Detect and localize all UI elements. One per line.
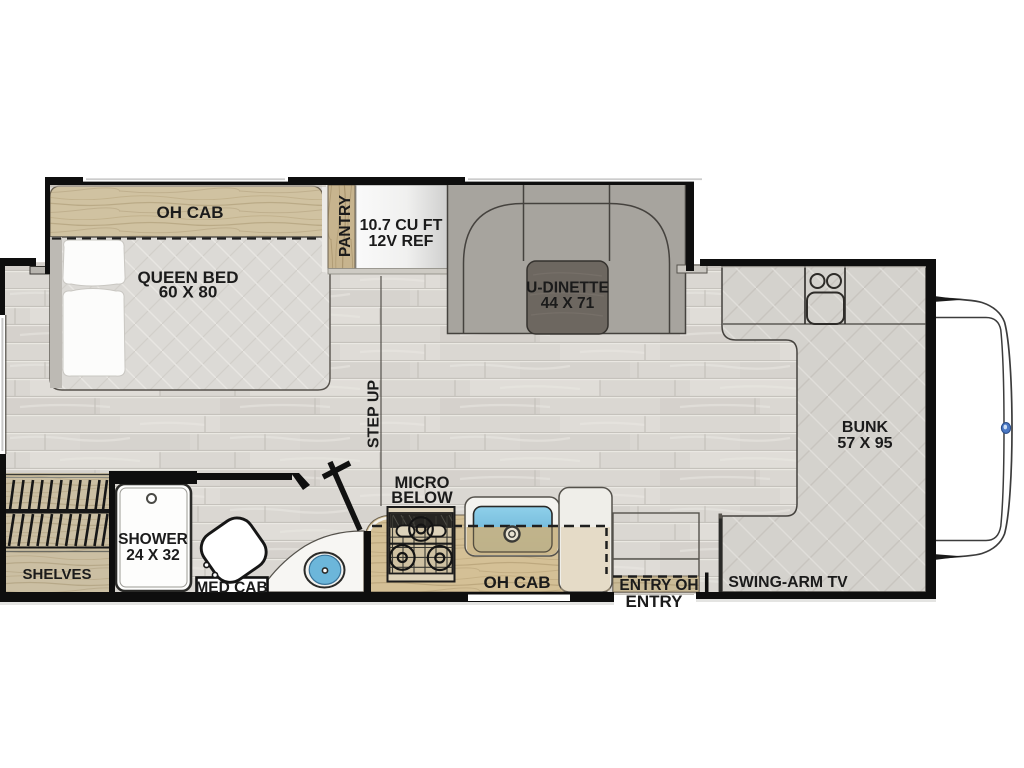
svg-text:OH CAB: OH CAB [483, 573, 550, 592]
svg-text:44 X 71: 44 X 71 [541, 295, 595, 312]
svg-text:SHOWER: SHOWER [118, 531, 188, 548]
svg-text:12V REF: 12V REF [369, 233, 434, 250]
svg-text:10.7 CU FT: 10.7 CU FT [360, 217, 443, 234]
svg-text:SHELVES: SHELVES [23, 566, 92, 583]
svg-text:PANTRY: PANTRY [337, 194, 354, 257]
svg-text:BELOW: BELOW [391, 489, 453, 507]
svg-text:57 X 95: 57 X 95 [837, 435, 892, 452]
svg-text:SWING-ARM TV: SWING-ARM TV [728, 574, 848, 591]
svg-text:60 X 80: 60 X 80 [159, 283, 218, 302]
svg-text:BUNK: BUNK [842, 419, 889, 436]
svg-text:MED CAB: MED CAB [195, 580, 267, 597]
svg-text:STEP UP: STEP UP [366, 380, 383, 449]
svg-text:24 X 32: 24 X 32 [126, 547, 179, 564]
svg-text:U-DINETTE: U-DINETTE [526, 280, 609, 297]
svg-text:OH CAB: OH CAB [156, 203, 223, 222]
svg-text:ENTRY: ENTRY [626, 592, 684, 611]
